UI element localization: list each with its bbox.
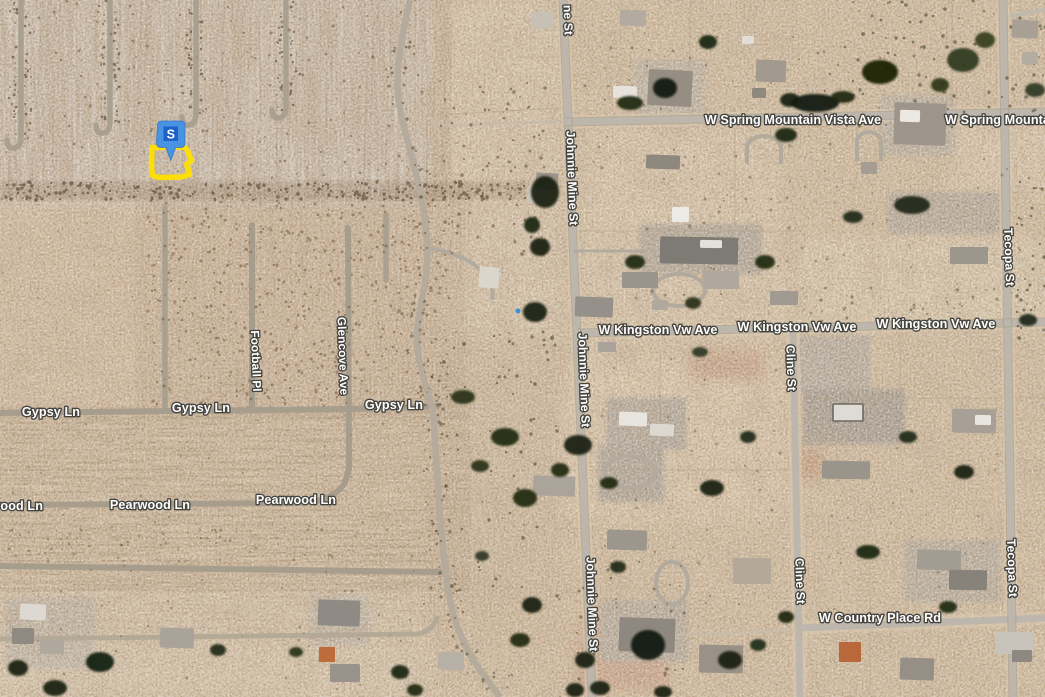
svg-text:W Kingston Vw Ave: W Kingston Vw Ave — [737, 320, 856, 334]
svg-text:W Country Place Rd: W Country Place Rd — [819, 611, 941, 625]
svg-text:Football Pl: Football Pl — [248, 330, 264, 392]
svg-text:wood Ln: wood Ln — [0, 499, 43, 513]
svg-text:Glencove Ave: Glencove Ave — [335, 317, 352, 396]
svg-text:Gypsy Ln: Gypsy Ln — [22, 405, 80, 419]
svg-text:Gypsy Ln: Gypsy Ln — [365, 398, 423, 412]
svg-text:ne St: ne St — [560, 5, 575, 36]
svg-text:W Kingston Vw Ave: W Kingston Vw Ave — [598, 323, 717, 337]
svg-text:Tecopa St: Tecopa St — [1001, 228, 1017, 287]
svg-text:Cline St: Cline St — [792, 558, 808, 605]
svg-text:Pearwood Ln: Pearwood Ln — [256, 493, 336, 507]
svg-text:Gypsy Ln: Gypsy Ln — [172, 401, 230, 415]
svg-text:S: S — [167, 128, 175, 142]
svg-text:W Spring Mountain Vista Ave: W Spring Mountain Vista Ave — [705, 113, 881, 127]
svg-text:W Spring Mountain: W Spring Mountain — [945, 113, 1045, 127]
svg-text:Tecopa St: Tecopa St — [1004, 539, 1020, 598]
svg-text:Pearwood Ln: Pearwood Ln — [110, 498, 190, 512]
svg-text:W Kingston Vw Ave: W Kingston Vw Ave — [876, 317, 995, 331]
svg-text:Cline St: Cline St — [783, 345, 799, 392]
